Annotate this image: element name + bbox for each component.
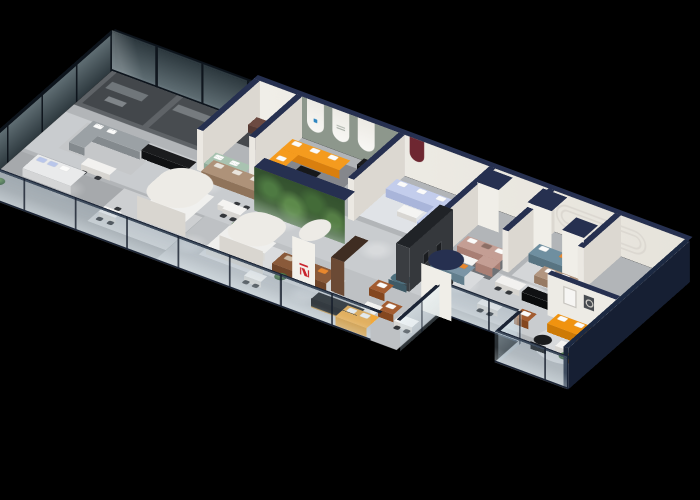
- sofa-pillow: [291, 141, 303, 147]
- sofa-pillow: [47, 161, 59, 167]
- sofa-cushion: [317, 268, 329, 274]
- sofa-pillow: [275, 155, 287, 161]
- logo-text-lines: [337, 127, 345, 131]
- brand-logo-icon: [314, 118, 318, 123]
- arch-niche: [358, 117, 375, 154]
- sofa-pillow: [466, 238, 478, 244]
- arch-niche: [307, 98, 324, 135]
- glass-railing: [495, 360, 570, 389]
- sofa-pillow: [557, 316, 569, 322]
- sofa-pillow: [416, 188, 428, 194]
- sofa-pillow: [93, 123, 105, 129]
- showroom-render: 3D isometric cutaway render of a modern …: [0, 0, 700, 500]
- sofa-pillow: [327, 154, 339, 160]
- sofa-pillow: [213, 163, 225, 169]
- sofa-pillow: [59, 165, 71, 171]
- round-art-frame: [584, 295, 594, 312]
- chair-cushion: [376, 282, 388, 288]
- sofa-pillow: [396, 181, 408, 187]
- sofa-pillow: [435, 195, 447, 201]
- arch-niche: [332, 108, 349, 145]
- sofa-pillow: [231, 169, 243, 175]
- glass-railing: [397, 312, 444, 351]
- sofa-pillow: [481, 243, 493, 249]
- art-ring-icon: [586, 298, 594, 309]
- red-logo-icon: [300, 267, 309, 277]
- sofa-pillow: [106, 128, 118, 134]
- maroon-arch-niche: [410, 136, 424, 164]
- sofa-pillow: [309, 148, 321, 154]
- sofa-pillow: [36, 157, 48, 163]
- mirror-frame: [563, 286, 576, 309]
- chair-cushion: [385, 303, 397, 309]
